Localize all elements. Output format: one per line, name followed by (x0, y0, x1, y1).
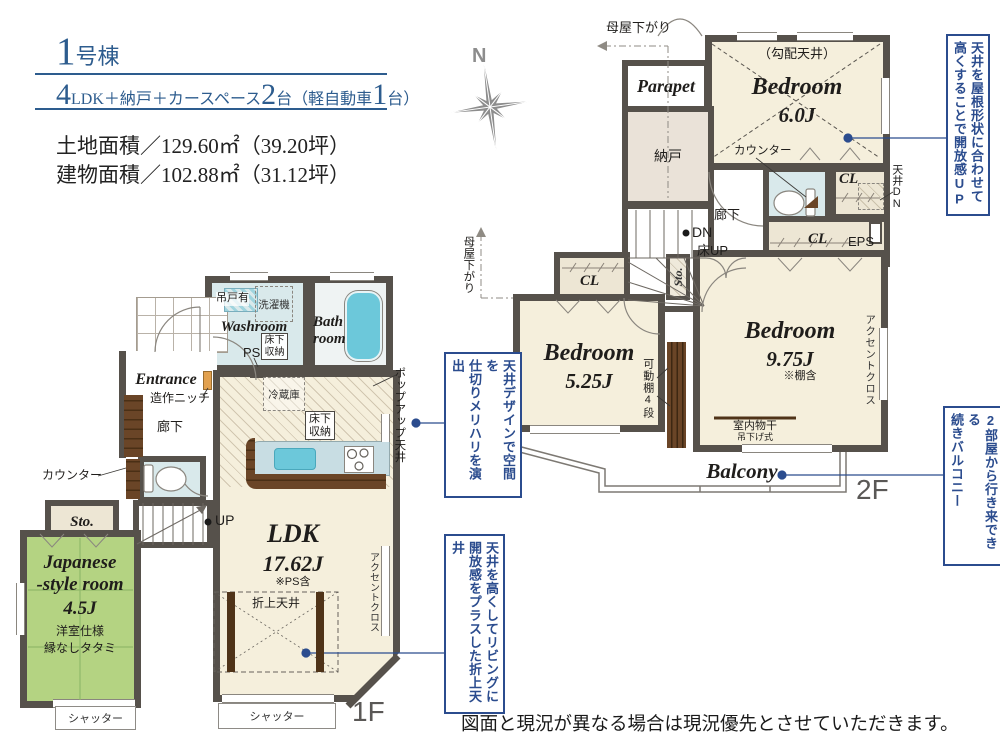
counter-shelf-1f (126, 459, 140, 499)
ldk-size: 17.62J (263, 550, 324, 578)
moya-sagari-arrows (476, 41, 607, 237)
spec-text-2: 台（軽自動車 (276, 91, 372, 108)
entrance-porch (136, 297, 228, 353)
land-area: 土地面積／129.60㎡（39.20坪） (56, 133, 350, 159)
bedroom6-ceiling-note: （勾配天井） (758, 46, 836, 62)
jroom-size: 4.5J (63, 597, 96, 621)
jroom-name2: -style room (36, 573, 123, 597)
adjustable-shelf (667, 342, 686, 448)
moya-sagari-top-label: 母屋下がり (606, 20, 671, 36)
building-area: 建物面積／102.88㎡（31.12坪） (56, 162, 350, 188)
counter-2f-label: カウンター (734, 144, 792, 158)
shutter-box-left: シャッター (55, 706, 136, 730)
entrance-label: Entrance (135, 370, 196, 390)
window (530, 425, 620, 434)
spec-num-2: 2 (261, 78, 276, 111)
note-balcony-col1: 2部屋から行き来できる (965, 413, 999, 559)
washing-machine: 洗濯機 (255, 286, 293, 322)
header-rule-bottom (35, 108, 387, 110)
accent-cross-1f-label: アクセントクロス (366, 552, 379, 640)
window (230, 272, 268, 281)
room-stairs-1f (133, 500, 213, 548)
moya-sagari-left-label: 母屋下がり (461, 236, 475, 302)
spec-text-1: LDK＋納戸＋カースペース (71, 91, 261, 108)
window (330, 272, 374, 281)
building-number: 1 (56, 30, 76, 73)
underfloor-storage-kitchen: 床下収納 (305, 411, 335, 440)
window (879, 328, 888, 400)
oriage-label: 折上天井 (249, 596, 303, 611)
up-label: UP (215, 512, 234, 530)
accent-cross-2f-label: アクセントクロス (863, 314, 876, 410)
bedroom6-name: Bedroom (752, 72, 843, 102)
ceiling-down-label: 天井DN (889, 164, 903, 216)
kitchen-sink (274, 448, 316, 470)
window (737, 32, 777, 41)
jroom-note1: 洋室仕様 (56, 624, 104, 639)
jroom-note2: 縁なしタタミ (44, 641, 116, 656)
ceiling-down-hatch (858, 183, 884, 210)
room-toilet-1f (138, 456, 206, 503)
bathroom-label: Bath room (313, 314, 346, 348)
shutter-box-bottom: シャッター (218, 703, 336, 729)
ps-label: PS (243, 345, 260, 361)
kitchen-stove (344, 446, 374, 473)
bedroom525-name: Bedroom (544, 338, 635, 368)
oriage-post-left (227, 592, 235, 672)
building-title: 1号棟 (56, 32, 120, 72)
oriage-post-right (316, 592, 324, 672)
storage-1f-label: Sto. (70, 513, 94, 532)
note-roof-col2: 高くすることで開放感UP (951, 41, 968, 209)
disclaimer-text: 図面と現況が異なる場合は現況優先とさせていただきます。 (461, 712, 959, 735)
note-roof-col1: 天井を屋根形状に合わせて (968, 41, 985, 209)
floor-plan-sheet: 1号棟 4LDK＋納戸＋カースペース2台（軽自動車1台） 土地面積／129.60… (0, 0, 1000, 750)
jroom-name1: Japanese (44, 551, 117, 575)
closet-l-label: CL (580, 272, 599, 291)
niche-shelf (203, 371, 212, 390)
shoe-cabinet (124, 395, 143, 457)
niche-label: 造作ニッチ (150, 391, 210, 406)
underfloor-storage-wash: 床下収納 (261, 333, 288, 360)
refrigerator: 冷蔵庫 (263, 377, 305, 411)
kitchen-counter-side (246, 438, 255, 478)
window (381, 546, 390, 636)
balcony-label: Balcony (706, 458, 777, 484)
nando-label: 納戸 (654, 148, 682, 166)
storage-under-stairs-2f (666, 254, 690, 300)
bedroom975-size: 9.75J (766, 346, 813, 372)
hall-2f-label: 廊下 (714, 207, 740, 223)
shutter-label: シャッター (250, 708, 305, 724)
window (16, 583, 25, 635)
note-kitchen-col2: 仕切りメリハリを演出 (449, 359, 483, 491)
spec-num-4: 4 (56, 78, 71, 111)
note-living-col1: 天井を高くしてリビングに (483, 541, 500, 707)
building-suffix: 号棟 (76, 44, 120, 69)
compass-north-label: N (472, 44, 486, 69)
floor-1f-label: 1F (352, 694, 385, 729)
washing-machine-label: 洗濯機 (258, 297, 290, 312)
yuka-up-label: 床UP (697, 243, 728, 259)
kitchen-counter-edge (246, 474, 386, 489)
eps-label: EPS (848, 234, 874, 250)
floor-2f-label: 2F (856, 472, 889, 507)
bedroom6-size: 6.0J (779, 102, 816, 128)
counter-1f-label: カウンター (42, 468, 102, 483)
wall-cabinet-label: 吊戸有 (216, 292, 249, 306)
dn-label: DN (692, 224, 712, 242)
window (797, 32, 853, 41)
closet-tr-label: CL (839, 170, 858, 189)
popup-ceiling-label: ポップアップ天井 (392, 367, 406, 465)
header-rule-top (35, 73, 387, 75)
parapet-label: Parapet (637, 75, 695, 98)
laundry-type-label: 吊下げ式 (737, 432, 773, 443)
spec-num-1: 1 (372, 78, 387, 111)
note-living-ceiling: 天井を高くしてリビングに 開放感をプラスした折上天井 (444, 534, 505, 714)
note-balcony: 2部屋から行き来できる 続きバルコニー (943, 406, 1000, 566)
adjustable-shelf-label: 可動棚4段 (640, 358, 654, 422)
bedroom975-name: Bedroom (745, 316, 836, 346)
note-living-col2: 開放感をプラスした折上天井 (449, 541, 483, 707)
bedroom525-size: 5.25J (565, 368, 612, 394)
ldk-note: ※PS含 (276, 576, 311, 590)
bathtub (345, 291, 382, 361)
refrigerator-label: 冷蔵庫 (268, 387, 300, 402)
note-roof-ceiling: 天井を屋根形状に合わせて 高くすることで開放感UP (946, 34, 990, 216)
spec-text-3: 台） (387, 91, 419, 108)
note-kitchen-ceiling: 天井デザインで空間を 仕切りメリハリを演出 (444, 352, 522, 498)
bathroom-label-line1: Bath (313, 314, 346, 331)
hall-1f-label: 廊下 (157, 419, 183, 435)
bathroom-label-line2: room (313, 331, 346, 348)
note-kitchen-col1: 天井デザインで空間を (483, 359, 517, 491)
shutter-label: シャッター (68, 710, 123, 726)
window (222, 694, 334, 703)
ldk-name: LDK (267, 518, 319, 551)
window (881, 78, 890, 134)
window (742, 444, 832, 453)
closet-b-label: CL (808, 230, 827, 249)
bedroom975-note: ※棚含 (784, 370, 817, 384)
note-balcony-col2: 続きバルコニー (948, 413, 965, 559)
window (381, 414, 390, 442)
